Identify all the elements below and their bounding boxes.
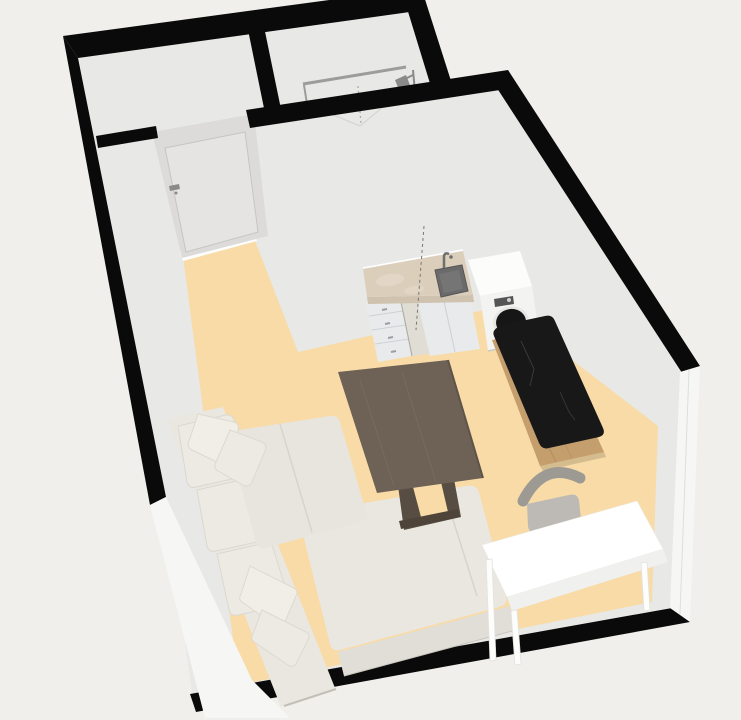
- drawer-handle-2: [385, 323, 390, 324]
- faucet-handle: [449, 255, 453, 259]
- floorplan-canvas: [0, 0, 741, 720]
- washer-knob: [507, 298, 511, 302]
- drawer-handle-3: [388, 337, 393, 338]
- drawer-handle-1: [382, 309, 387, 310]
- door-handle-rose: [175, 192, 178, 195]
- drawer-handle-4: [391, 351, 396, 352]
